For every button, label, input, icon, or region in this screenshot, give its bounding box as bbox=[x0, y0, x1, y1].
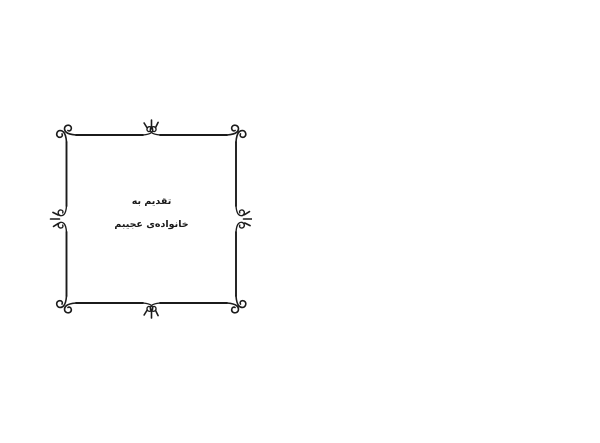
corner-curl-top-right-h bbox=[227, 125, 238, 135]
dedication-page: تقدیم به خانواده‌ی عجیبم bbox=[0, 0, 600, 443]
corner-curl-top-left-h bbox=[65, 125, 76, 135]
sprout-right bbox=[244, 212, 253, 226]
dedication-line-1: تقدیم به bbox=[67, 196, 236, 207]
corner-curl-top-left-v bbox=[57, 131, 67, 142]
dedication-line-2: خانواده‌ی عجیبم bbox=[67, 219, 236, 230]
sprout-left bbox=[51, 212, 60, 226]
corner-curl-bottom-left-h bbox=[65, 303, 76, 313]
mid-curl-right-lower bbox=[236, 222, 244, 232]
mid-curl-left-lower bbox=[58, 222, 66, 232]
corner-curl-bottom-left-v bbox=[57, 296, 67, 307]
corner-curl-bottom-right-h bbox=[227, 303, 238, 313]
sprout-bottom bbox=[144, 309, 158, 318]
ornamental-swirl-frame-icon bbox=[44, 114, 252, 322]
mid-curl-right-upper bbox=[236, 206, 244, 216]
mid-curl-left-upper bbox=[58, 206, 66, 216]
sprout-top bbox=[144, 120, 158, 129]
